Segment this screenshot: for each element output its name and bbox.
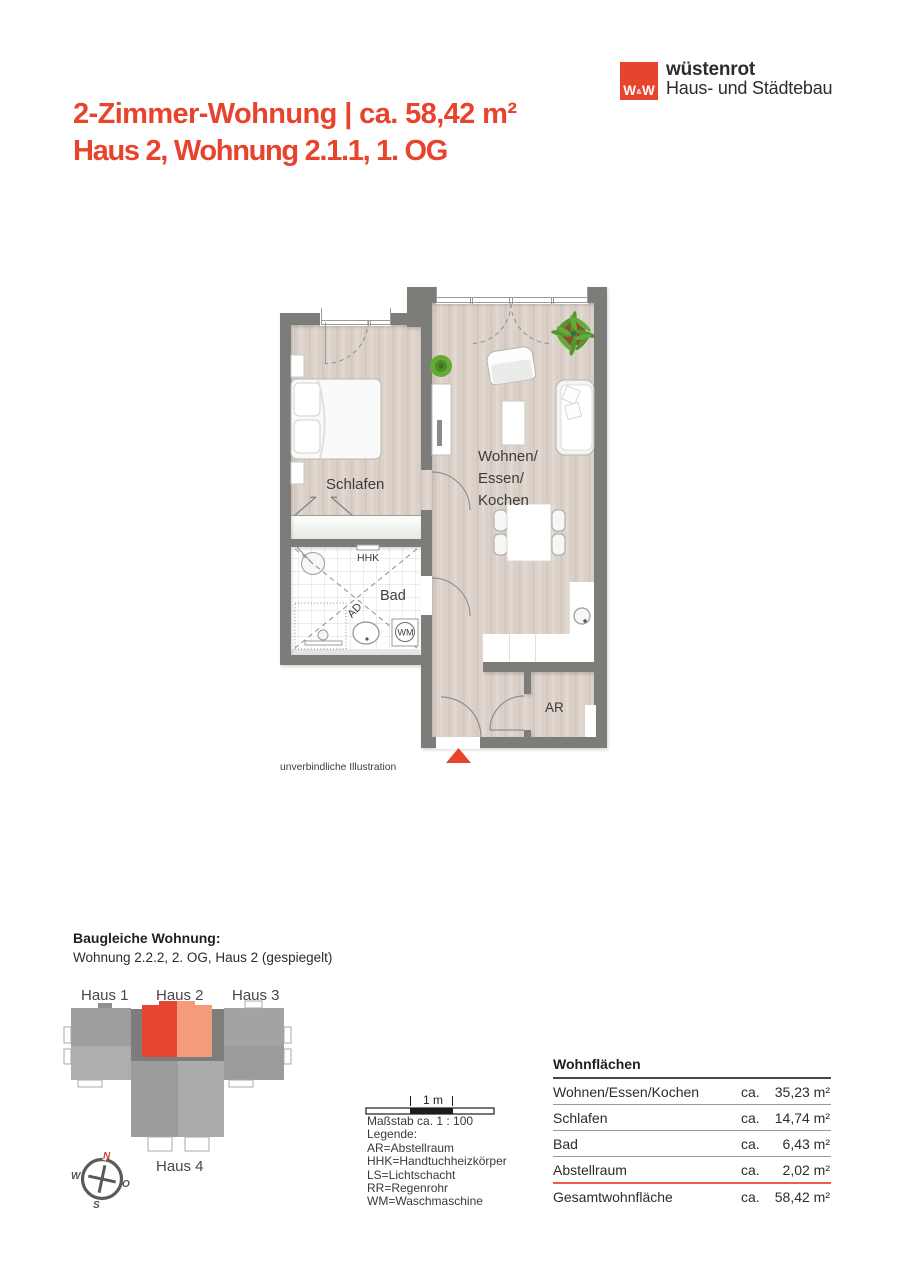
- svg-text:Haus 2: Haus 2: [156, 987, 204, 1004]
- svg-text:Haus 3: Haus 3: [232, 987, 280, 1004]
- svg-text:1 m: 1 m: [423, 1093, 443, 1107]
- svg-text:Bad: Bad: [380, 588, 406, 604]
- svg-text:Wohnen/: Wohnen/: [478, 448, 539, 465]
- svg-text:Haus 4: Haus 4: [156, 1158, 204, 1175]
- svg-text:Essen/: Essen/: [478, 470, 525, 487]
- svg-text:Haus 1: Haus 1: [81, 987, 129, 1004]
- svg-text:HHK: HHK: [357, 552, 379, 564]
- svg-text:Schlafen: Schlafen: [326, 476, 384, 493]
- svg-text:N: N: [103, 1151, 111, 1162]
- svg-text:AR: AR: [545, 700, 564, 715]
- svg-text:Kochen: Kochen: [478, 492, 529, 509]
- svg-text:W: W: [71, 1171, 82, 1182]
- svg-text:WM: WM: [398, 628, 414, 638]
- svg-text:unverbindliche Illustration: unverbindliche Illustration: [280, 762, 396, 773]
- svg-text:S: S: [93, 1200, 100, 1211]
- svg-text:O: O: [122, 1179, 130, 1190]
